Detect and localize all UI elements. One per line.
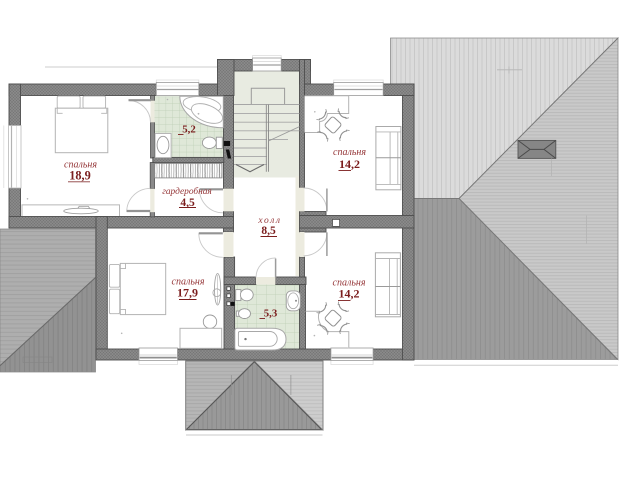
- svg-text:18,9: 18,9: [69, 169, 91, 183]
- svg-text:17,9: 17,9: [177, 286, 198, 300]
- svg-text:14,2: 14,2: [339, 157, 360, 171]
- svg-text:8,5: 8,5: [261, 225, 276, 237]
- svg-text:гардеробная: гардеробная: [162, 186, 212, 197]
- svg-text:5,3: 5,3: [264, 308, 278, 320]
- svg-text:14,2: 14,2: [339, 287, 360, 301]
- svg-text:5,2: 5,2: [182, 124, 196, 136]
